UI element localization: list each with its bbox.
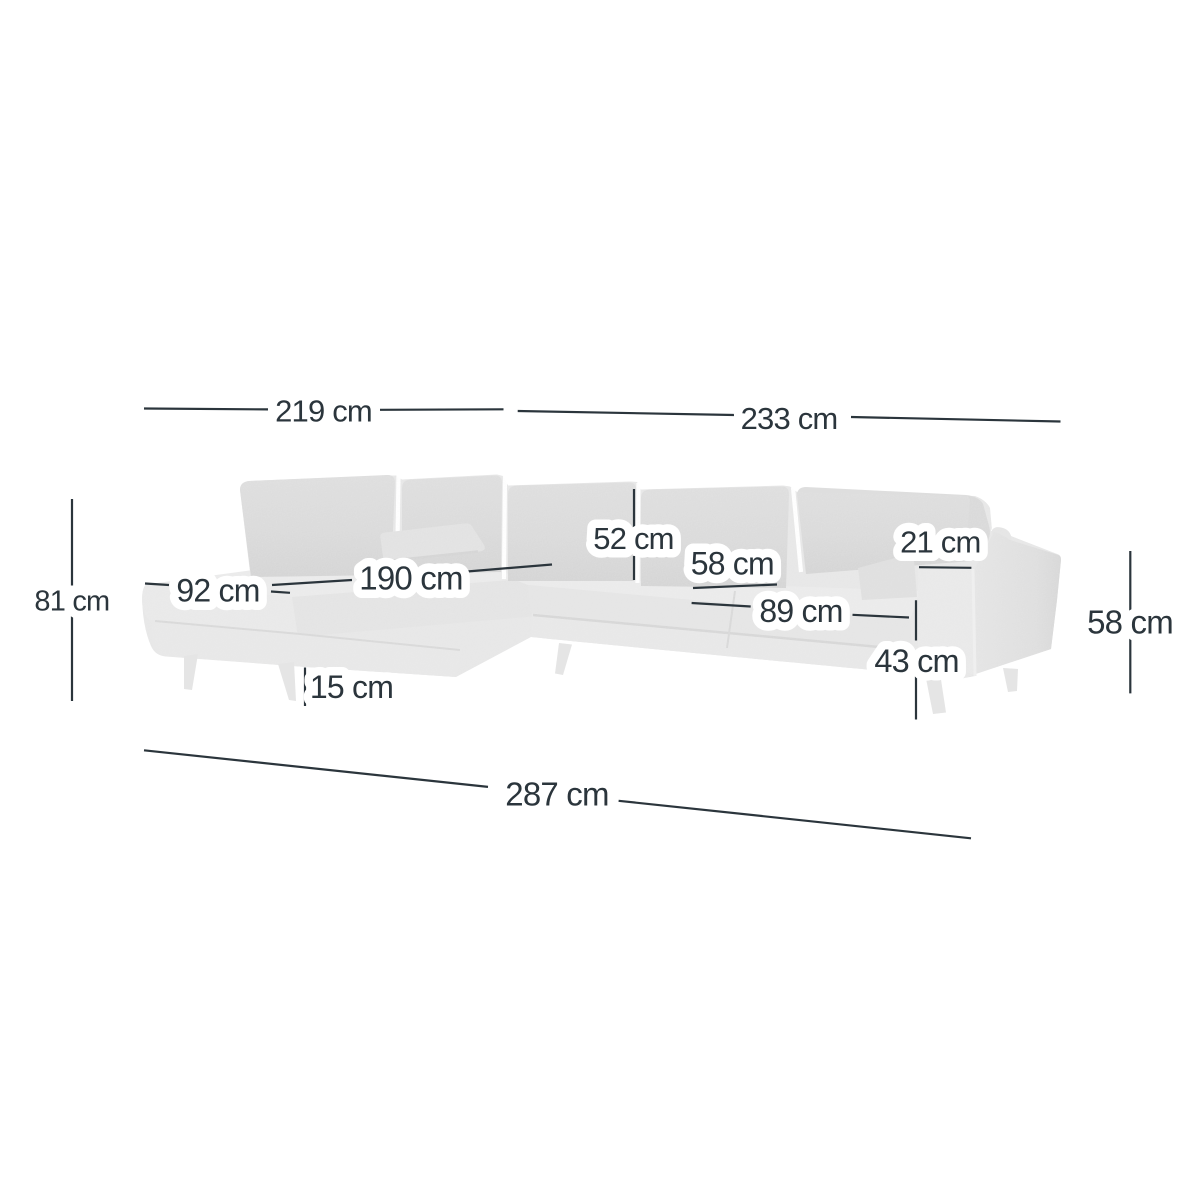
svg-text:58 cm: 58 cm [691,545,774,581]
svg-text:15 cm: 15 cm [310,669,393,705]
svg-text:58 cm: 58 cm [1087,603,1173,640]
svg-text:190 cm: 190 cm [359,560,462,597]
svg-text:89 cm: 89 cm [759,593,842,629]
svg-text:92 cm: 92 cm [176,573,259,609]
svg-text:21 cm: 21 cm [900,524,980,559]
svg-text:52 cm: 52 cm [593,521,673,556]
svg-text:81 cm: 81 cm [34,586,109,618]
svg-text:287 cm: 287 cm [505,776,608,813]
svg-text:233 cm: 233 cm [741,401,838,436]
svg-text:219 cm: 219 cm [275,393,372,428]
svg-text:43 cm: 43 cm [874,643,959,679]
